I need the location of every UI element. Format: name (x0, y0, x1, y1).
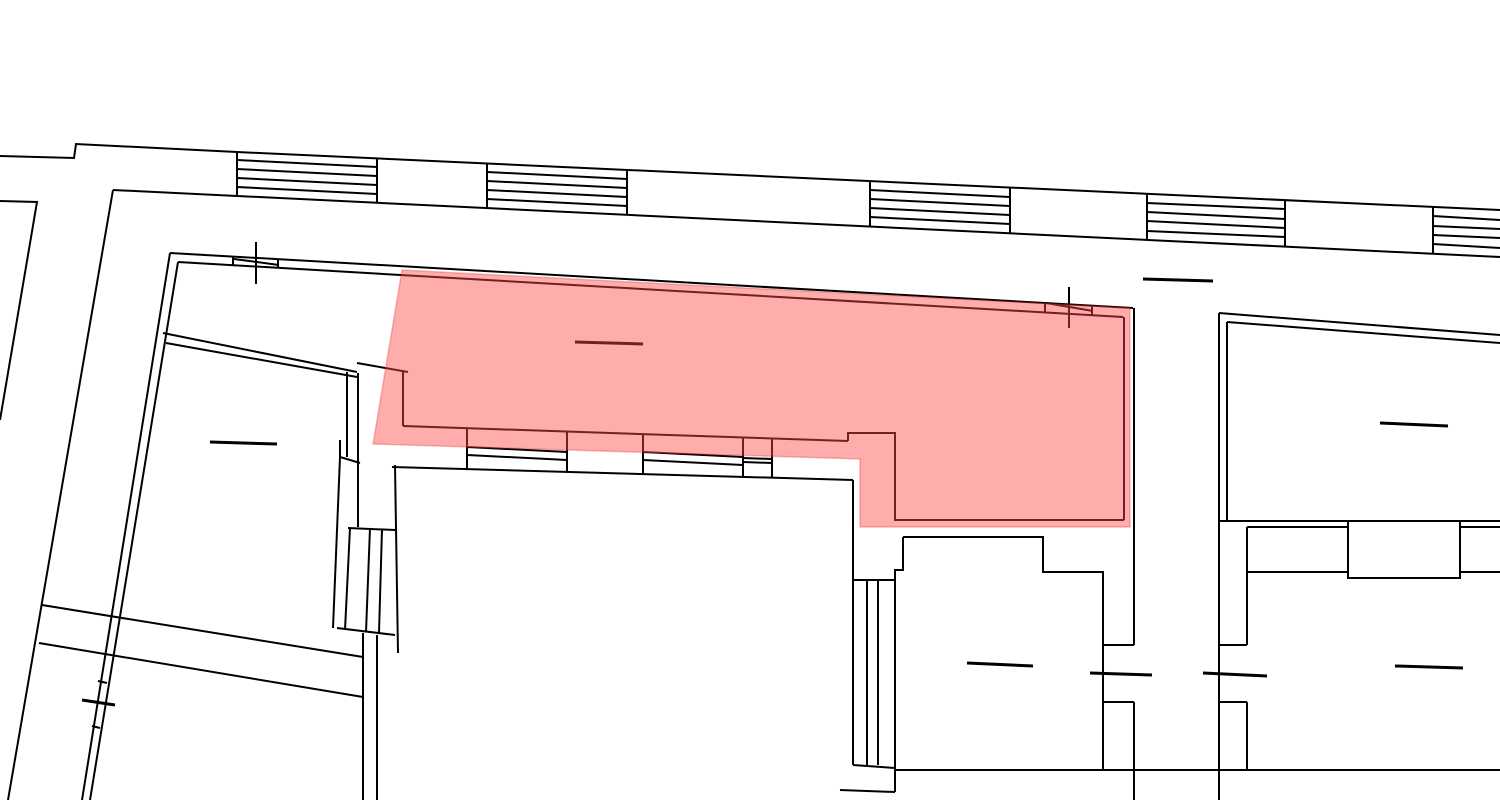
label_dashes-line (210, 442, 277, 444)
floor-plan-canvas (0, 0, 1500, 800)
label_dashes-line (1090, 673, 1152, 675)
label_dashes-line (1395, 666, 1463, 668)
label_dashes-line (1143, 279, 1213, 281)
window_sills-line (743, 458, 772, 459)
floor-plan-svg (0, 0, 1500, 800)
window_sills-line (743, 462, 772, 463)
